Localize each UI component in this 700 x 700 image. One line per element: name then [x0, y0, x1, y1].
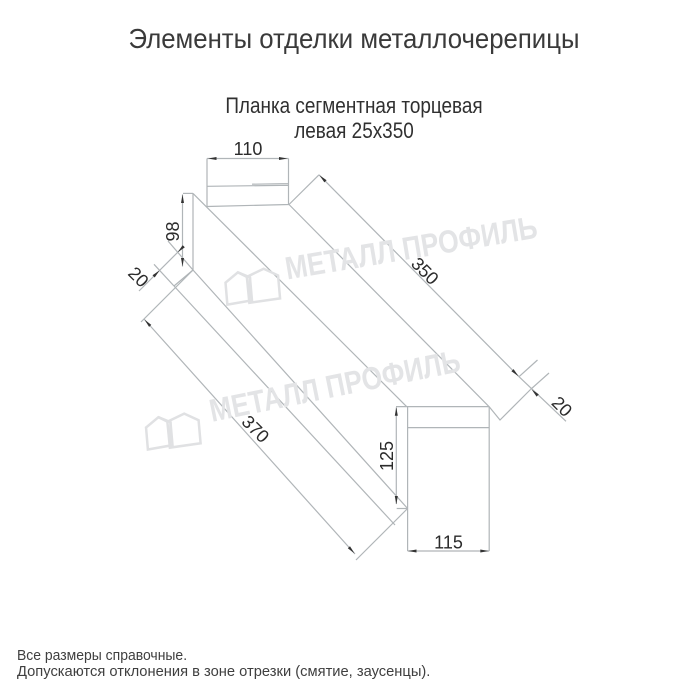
- svg-text:МЕТАЛЛ ПРОФИЛЬ: МЕТАЛЛ ПРОФИЛЬ: [206, 343, 463, 429]
- svg-text:20: 20: [548, 392, 576, 420]
- svg-text:110: 110: [234, 139, 263, 159]
- svg-text:МЕТАЛЛ ПРОФИЛЬ: МЕТАЛЛ ПРОФИЛЬ: [283, 210, 540, 288]
- svg-text:125: 125: [377, 441, 397, 471]
- svg-text:115: 115: [434, 533, 463, 553]
- svg-text:98: 98: [163, 221, 183, 241]
- svg-text:20: 20: [124, 263, 152, 291]
